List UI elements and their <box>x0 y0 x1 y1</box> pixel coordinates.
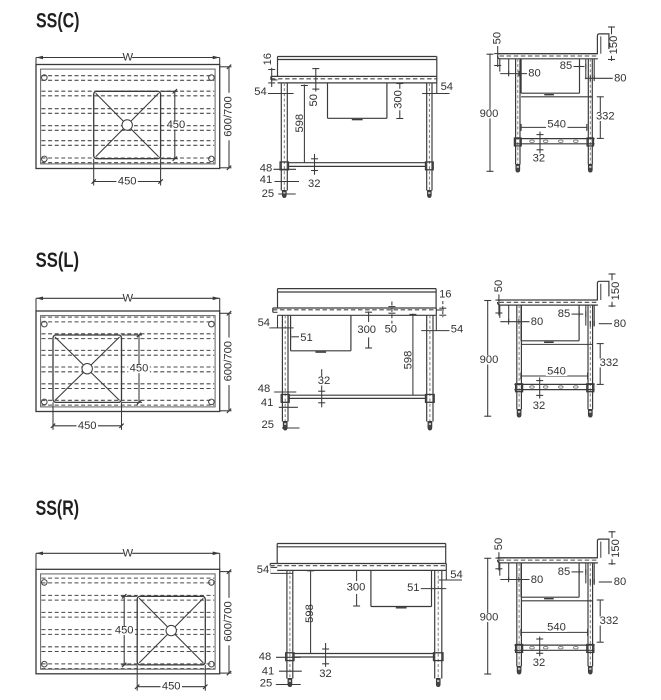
svg-text:48: 48 <box>260 162 272 174</box>
svg-text:25: 25 <box>262 188 274 200</box>
svg-text:SS(C): SS(C) <box>36 9 80 32</box>
svg-text:598: 598 <box>304 604 316 623</box>
svg-text:54: 54 <box>441 81 453 93</box>
svg-text:32: 32 <box>318 375 330 387</box>
svg-text:450: 450 <box>167 119 186 131</box>
svg-text:450: 450 <box>130 363 149 375</box>
svg-text:80: 80 <box>531 316 543 328</box>
svg-text:54: 54 <box>257 564 269 576</box>
svg-text:450: 450 <box>118 176 137 188</box>
svg-text:W: W <box>123 52 134 64</box>
svg-text:540: 540 <box>547 366 566 378</box>
svg-text:SS(L): SS(L) <box>36 249 80 272</box>
svg-text:50: 50 <box>492 32 504 44</box>
svg-text:450: 450 <box>162 681 181 693</box>
svg-text:332: 332 <box>600 357 619 369</box>
svg-text:85: 85 <box>558 566 570 578</box>
svg-text:80: 80 <box>614 576 626 588</box>
svg-text:540: 540 <box>547 622 566 634</box>
svg-text:80: 80 <box>614 318 626 330</box>
svg-text:85: 85 <box>558 308 570 320</box>
svg-text:32: 32 <box>533 400 545 412</box>
svg-text:300: 300 <box>357 324 376 336</box>
svg-text:16: 16 <box>439 289 451 301</box>
svg-text:598: 598 <box>403 351 415 370</box>
svg-text:54: 54 <box>254 86 266 98</box>
svg-text:900: 900 <box>480 612 499 624</box>
svg-text:600/700: 600/700 <box>222 601 234 641</box>
svg-text:80: 80 <box>531 574 543 586</box>
svg-text:SS(R): SS(R) <box>36 497 80 520</box>
svg-text:16: 16 <box>262 53 274 65</box>
svg-text:450: 450 <box>78 420 97 432</box>
svg-text:80: 80 <box>528 68 540 80</box>
svg-text:332: 332 <box>600 615 619 627</box>
svg-text:600/700: 600/700 <box>222 341 234 381</box>
svg-text:54: 54 <box>450 569 462 581</box>
svg-text:51: 51 <box>407 582 419 594</box>
svg-text:150: 150 <box>610 282 622 301</box>
svg-text:48: 48 <box>259 651 271 663</box>
svg-text:41: 41 <box>262 666 274 678</box>
svg-text:25: 25 <box>260 678 272 690</box>
svg-text:41: 41 <box>260 174 272 186</box>
svg-text:150: 150 <box>608 36 620 55</box>
svg-text:900: 900 <box>480 354 499 366</box>
svg-text:50: 50 <box>308 94 320 106</box>
svg-text:900: 900 <box>480 108 499 120</box>
svg-text:51: 51 <box>300 332 312 344</box>
svg-text:32: 32 <box>533 152 545 164</box>
svg-text:300: 300 <box>393 90 405 109</box>
svg-text:300: 300 <box>347 581 366 593</box>
svg-text:W: W <box>123 292 134 304</box>
svg-text:332: 332 <box>596 111 615 123</box>
svg-text:598: 598 <box>294 114 306 133</box>
svg-text:W: W <box>123 547 134 559</box>
svg-text:32: 32 <box>533 657 545 669</box>
svg-text:54: 54 <box>258 317 270 329</box>
svg-text:540: 540 <box>547 118 566 130</box>
svg-text:85: 85 <box>560 60 572 72</box>
svg-text:50: 50 <box>493 538 505 550</box>
svg-text:50: 50 <box>385 324 397 336</box>
svg-text:80: 80 <box>614 72 626 84</box>
svg-text:41: 41 <box>261 397 273 409</box>
svg-text:150: 150 <box>610 539 622 558</box>
svg-text:54: 54 <box>451 323 463 335</box>
svg-text:32: 32 <box>319 668 331 680</box>
svg-text:50: 50 <box>493 280 505 292</box>
svg-text:600/700: 600/700 <box>222 96 234 136</box>
svg-text:25: 25 <box>261 419 273 431</box>
svg-text:450: 450 <box>115 625 134 637</box>
svg-text:48: 48 <box>258 383 270 395</box>
svg-text:32: 32 <box>308 178 320 190</box>
